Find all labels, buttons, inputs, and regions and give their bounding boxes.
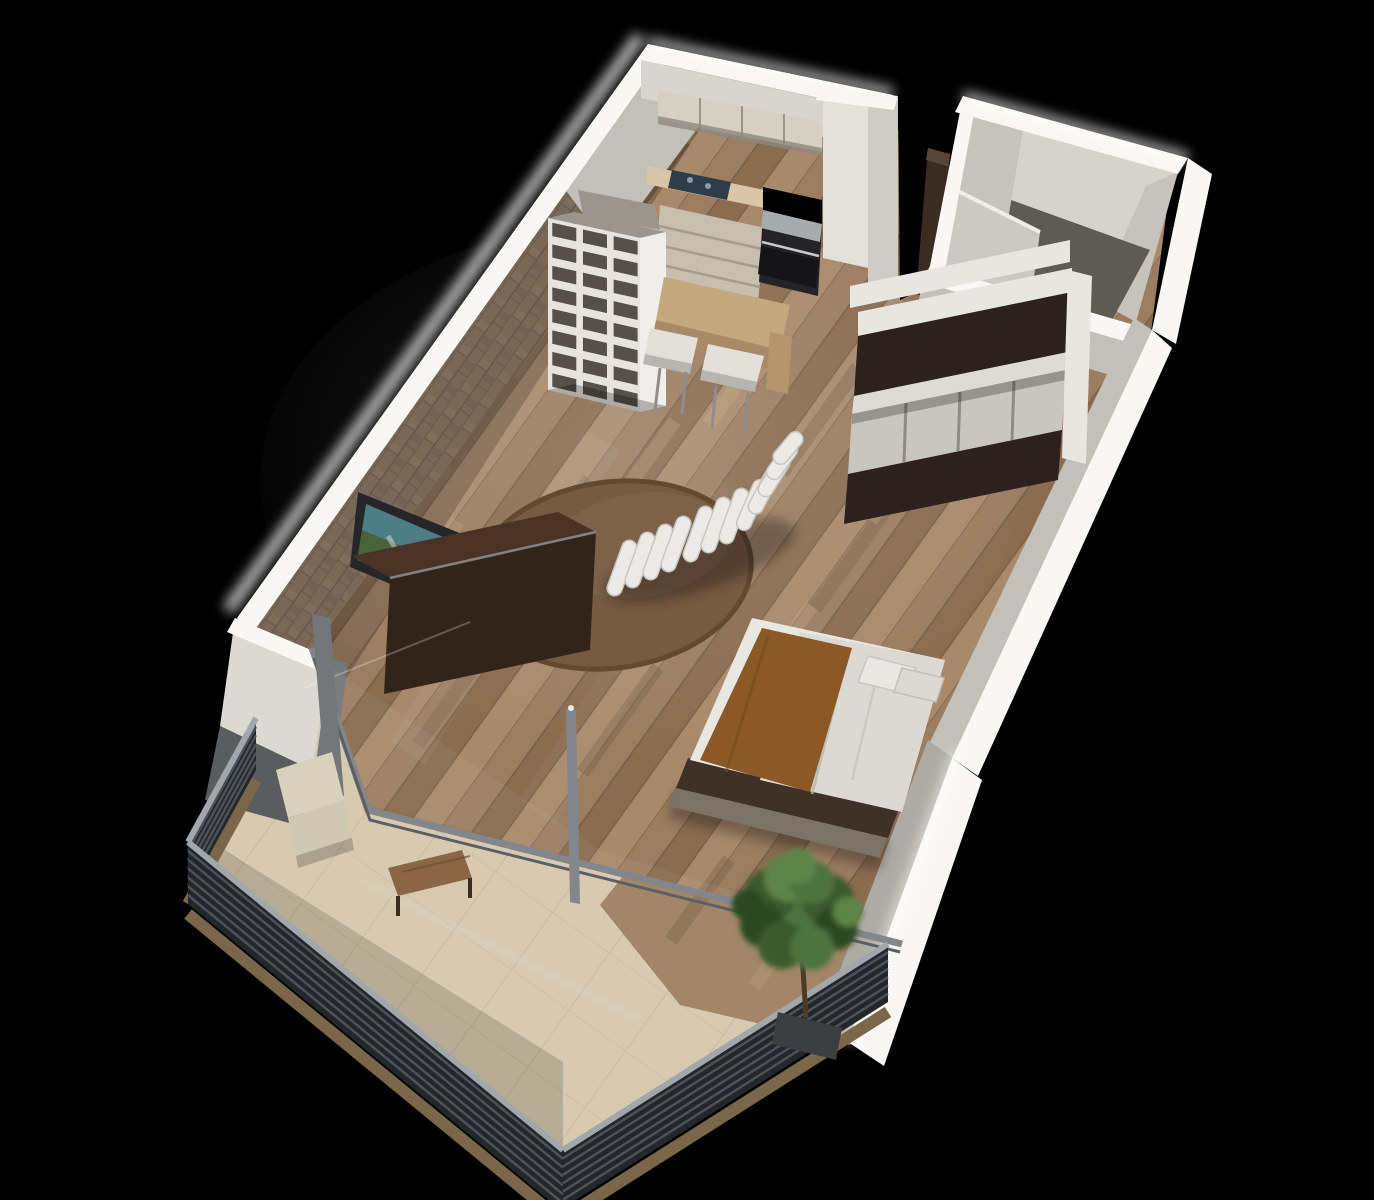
tall-cabinet <box>823 90 868 268</box>
stove <box>758 187 822 296</box>
foliage-blob <box>833 897 863 927</box>
foliage-blob <box>790 926 834 970</box>
kitchen-wall-column <box>868 92 898 292</box>
foliage-blob <box>780 848 816 884</box>
apartment-3d-floorplan <box>0 0 1374 1200</box>
bookshelf <box>548 212 666 412</box>
foliage-blob <box>732 889 764 921</box>
render-canvas <box>0 0 1374 1200</box>
